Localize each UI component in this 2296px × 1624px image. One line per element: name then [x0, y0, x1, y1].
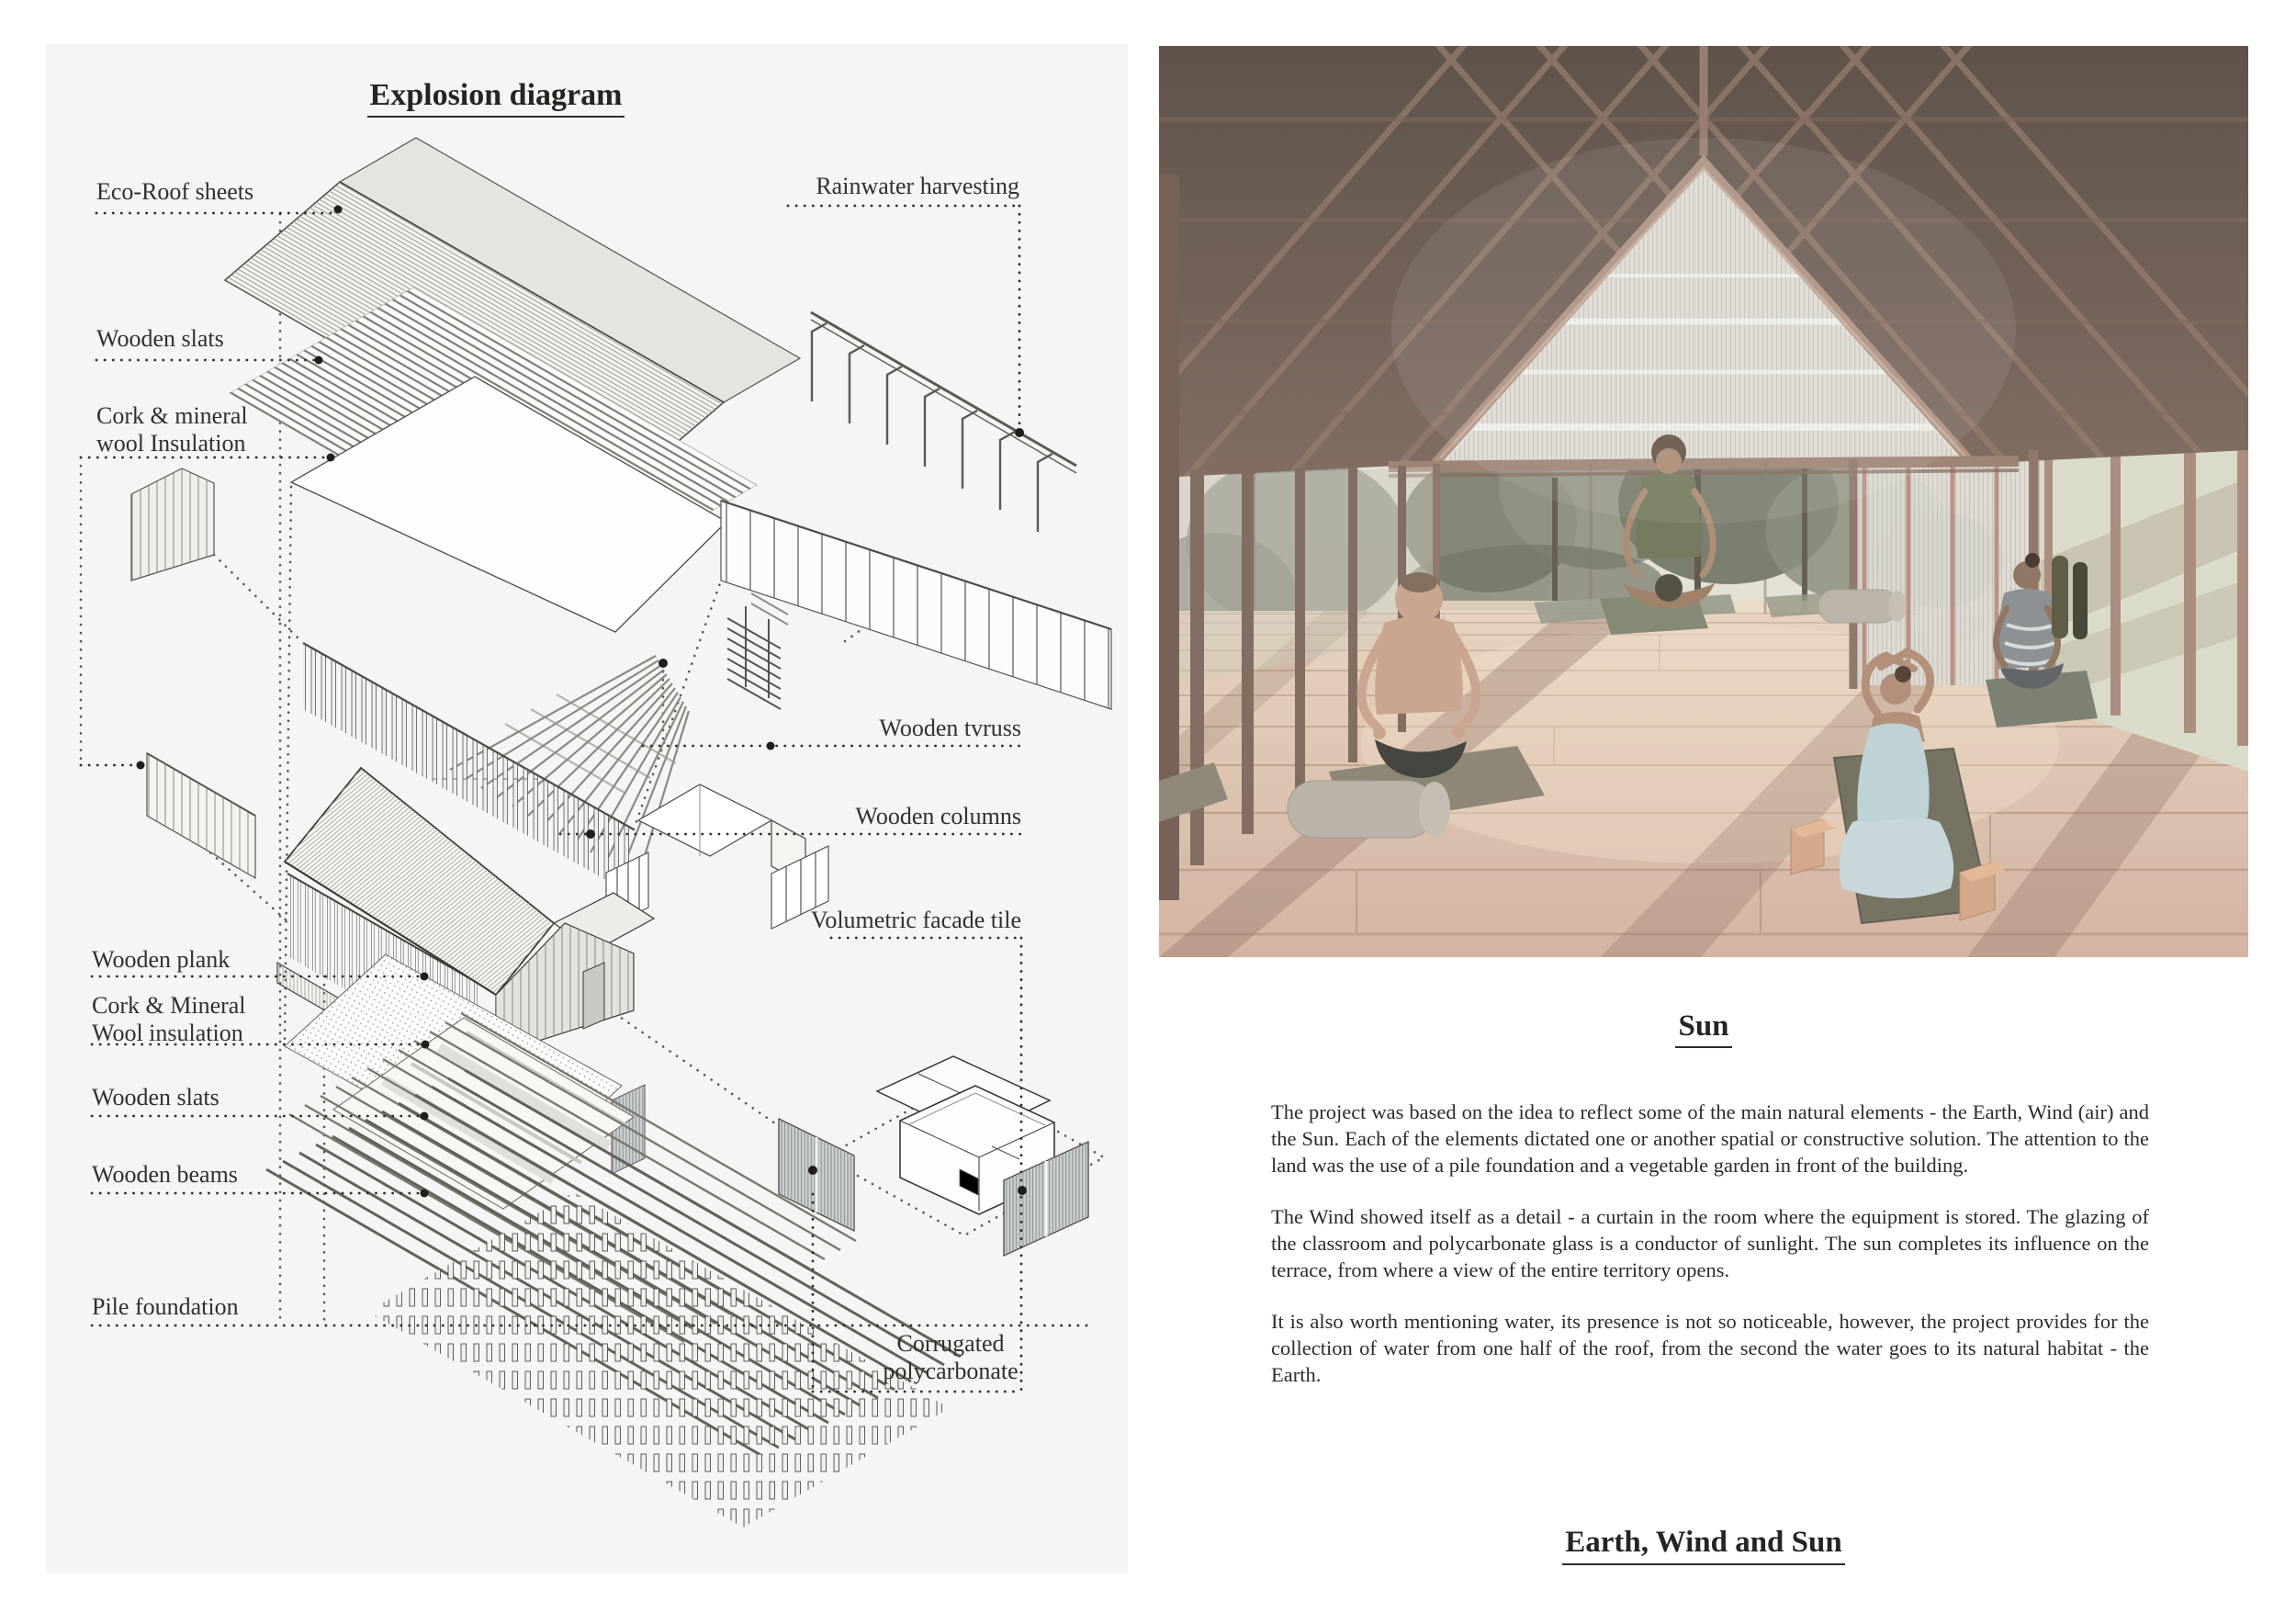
- explosion-diagram-panel: Explosion diagram Eco-Roof sheets Wooden…: [46, 44, 1128, 1573]
- gable-wall-piece: [131, 468, 214, 581]
- wall-frame-piece: [147, 753, 255, 878]
- label-beams: Wooden beams: [92, 1161, 238, 1189]
- rainwater-gutter-drawing: [811, 312, 1076, 532]
- label-plank: Wooden plank: [92, 946, 230, 974]
- light-haze: [1159, 46, 2248, 957]
- yoga-pavilion-photo: [1159, 46, 2248, 957]
- label-eco-roof: Eco-Roof sheets: [96, 178, 253, 206]
- project-description: The project was based on the idea to ref…: [1271, 1099, 2149, 1413]
- label-cork-top-line2: wool Insulation: [96, 430, 246, 457]
- paragraph-wind: The Wind showed itself as a detail - a c…: [1271, 1203, 2149, 1283]
- page-title: Earth, Wind and Sun: [1159, 1526, 2248, 1565]
- label-wooden-slats-bottom: Wooden slats: [92, 1084, 219, 1111]
- paragraph-earth: The project was based on the idea to ref…: [1271, 1099, 2149, 1179]
- label-truss: Wooden tvruss: [838, 715, 1021, 742]
- presentation-page: Explosion diagram Eco-Roof sheets Wooden…: [0, 0, 2296, 1624]
- label-cork-top-line1: Cork & mineral: [96, 402, 248, 430]
- paragraph-water: It is also worth mentioning water, its p…: [1271, 1308, 2149, 1388]
- label-corrugated-line2: polycarbonate: [840, 1358, 1061, 1385]
- label-corrugated-line1: Corrugated: [840, 1330, 1061, 1358]
- label-cork-bottom-line1: Cork & Mineral: [92, 992, 246, 1020]
- label-columns: Wooden columns: [819, 803, 1021, 830]
- label-pile: Pile foundation: [92, 1293, 239, 1321]
- label-cork-bottom-line2: Wool insulation: [92, 1020, 243, 1047]
- diagram-title: Explosion diagram: [303, 78, 689, 118]
- label-rainwater: Rainwater harvesting: [788, 173, 1019, 200]
- label-wooden-slats-top: Wooden slats: [96, 325, 224, 353]
- label-facade-tile: Volumetric facade tile: [773, 907, 1021, 934]
- truss-detail: [727, 593, 788, 709]
- photo-caption: Sun: [1159, 1009, 2248, 1048]
